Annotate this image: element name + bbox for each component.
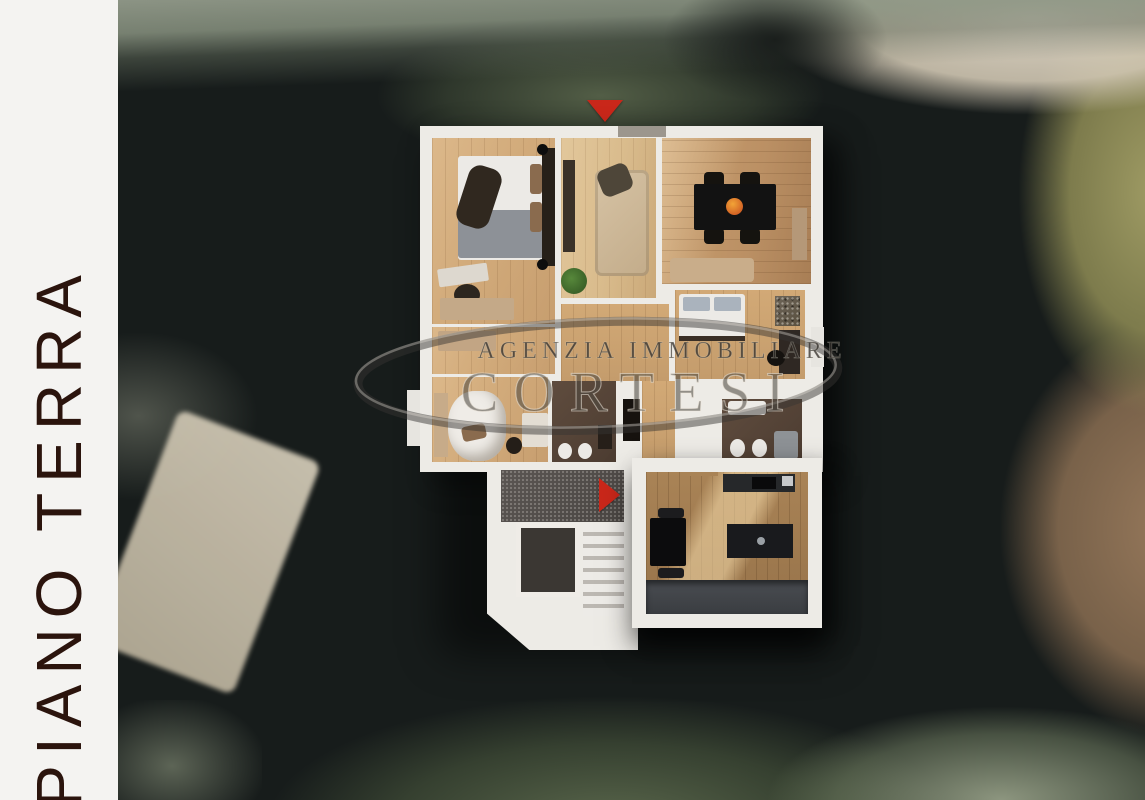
terrace [646,580,808,614]
island-sink [757,537,765,545]
window-sill-left [407,390,420,446]
tv-unit [563,160,575,252]
chair [658,568,684,578]
cooktop [752,477,776,489]
window-sill-right [811,327,824,367]
sideboard [440,298,514,320]
bedroom-1 [432,138,555,324]
shower-mat [774,431,798,459]
entrance-arrow-down-icon [587,100,623,122]
bed-post [537,144,548,155]
floor-label-panel: PIANO TERRA [0,0,118,800]
wardrobe [434,393,448,457]
table [650,518,686,566]
floor-plan [420,122,823,662]
bidet [578,443,592,459]
hallway [561,304,669,381]
dining-chair [740,228,760,244]
office-chair [767,350,785,366]
bedroom-2 [675,290,805,379]
dark-closet [623,399,640,441]
granite-closet [775,296,800,326]
bath-vanity [598,425,612,449]
dresser [438,331,496,351]
dining-room [662,138,811,284]
toilet [730,439,745,457]
bathroom-center [552,381,616,462]
bidet [752,439,767,457]
floor-label: PIANO TERRA [22,265,96,800]
kitchen-dining-room [646,472,808,614]
pillow [714,297,741,311]
pillow [530,202,542,232]
pillow [530,164,542,194]
bed-headboard [542,148,555,266]
dining-chair [704,228,724,244]
kitchen-block [632,458,822,628]
plant [561,268,587,294]
bathroom-right [722,399,802,462]
kitchen-island [727,524,793,558]
bed-post [537,259,548,270]
desk-chair [506,437,522,454]
neighbor-roof [91,409,322,695]
kitchen-door-gap [682,472,718,476]
floor-label-box: PIANO TERRA [0,283,118,789]
pillow [683,297,710,311]
bed-footboard [679,336,745,341]
kitchen-sink [782,476,793,486]
corridor-down [642,381,675,462]
corridor-left [432,327,555,374]
stair-opening [521,528,575,592]
stair-treads [583,524,624,616]
sink-counter [728,401,766,415]
screenshot-stage: AGENZIA IMMOBILIARE CORTESI PIANO TERRA [0,0,1145,800]
dining-sideboard [792,208,807,260]
main-apartment-block [420,126,823,472]
entrance-arrow-right-icon [599,478,620,512]
chair [658,508,684,518]
desk [522,413,548,447]
stairwell-block [487,468,638,650]
bedroom-3-canopy [432,377,548,462]
toilet [558,443,572,459]
grass-patch [112,700,262,800]
bench-sofa [670,258,754,282]
living-room [561,138,656,298]
entry-door-notch [618,126,666,137]
fruit-bowl [726,198,743,215]
